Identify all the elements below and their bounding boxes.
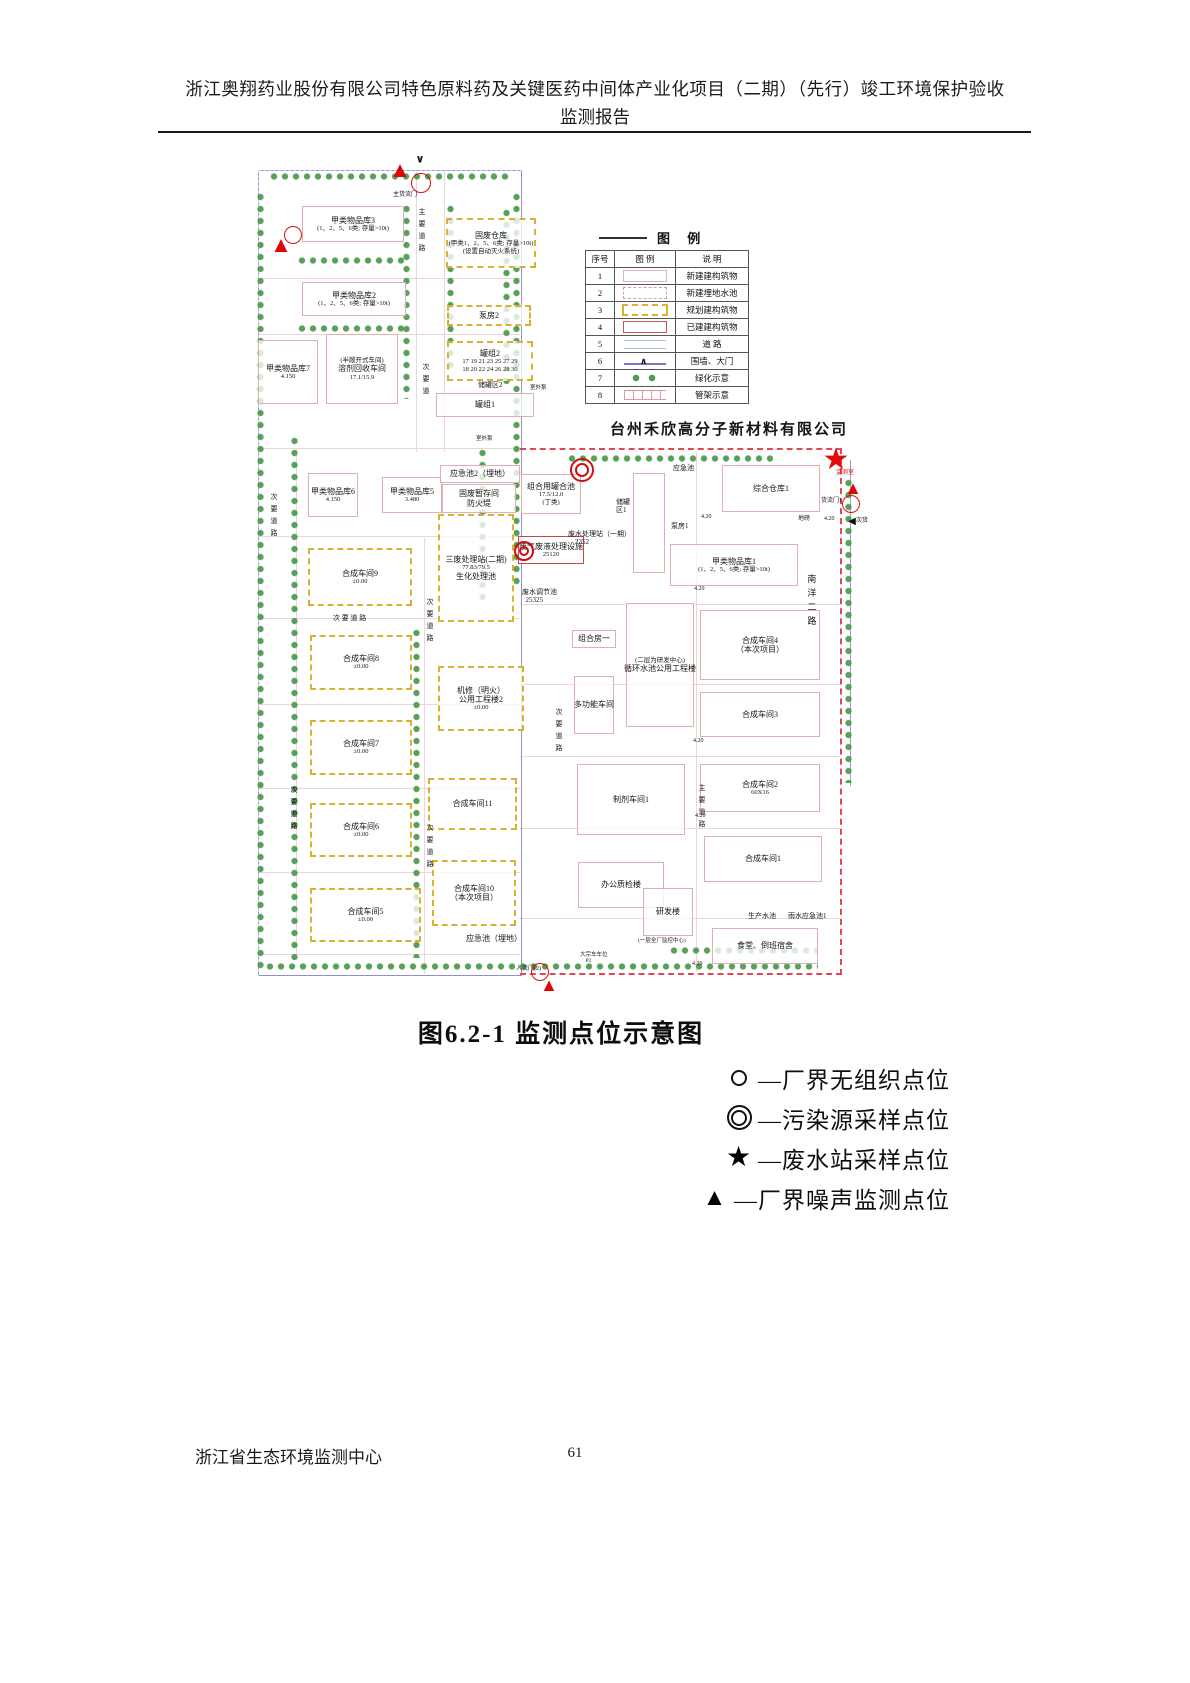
map-building: 甲类物品库64.150	[308, 473, 358, 517]
map-label: 废水处理站（一期） 2352	[568, 530, 631, 546]
legend-row-number: 3	[586, 302, 615, 319]
legend-title-row: 图 例	[585, 226, 747, 250]
map-building: 应急池（埋地）	[446, 931, 542, 947]
legend-row-number: 8	[586, 387, 615, 404]
map-label: 次要道路	[426, 824, 434, 872]
map-building: 合成车间11	[428, 778, 517, 830]
site-plan-map: 台州禾欣高分子新材料有限公司 图 例 序号图 例说 明 1新建建构筑物2新建埋地…	[250, 148, 872, 996]
map-label: 主要道路	[418, 208, 426, 256]
legend-swatch-cell	[615, 370, 676, 387]
map-label: 室外泵	[476, 436, 493, 442]
point-legend-item: ★—废水站采样点位	[721, 1142, 950, 1173]
point-legend-label: —污染源采样点位	[758, 1101, 950, 1135]
legend-swatch-cell	[615, 319, 676, 336]
map-label: 储罐区2	[478, 381, 503, 389]
map-building: 固废仓库(甲类1、2、5、6类; 存量>10t)(设置自动灭火系统)	[446, 218, 536, 268]
legend-row: 5道 路	[586, 336, 749, 353]
legend-swatch-pipe	[624, 390, 666, 400]
project-boundary-right	[840, 448, 842, 975]
map-label: 次要道路	[290, 786, 298, 834]
legend-swatch-new	[623, 270, 667, 282]
map-label: 室外泵	[530, 385, 547, 391]
map-building: 制剂车间1	[577, 764, 685, 835]
map-building: 合成车间260X16	[700, 764, 820, 812]
marker-star: ★	[823, 445, 850, 475]
map-building: 合成车间9±0.00	[308, 548, 412, 606]
map-label: 次货	[856, 518, 868, 525]
legend-swatch-cell	[615, 387, 676, 404]
legend-swatch-cell	[615, 353, 676, 370]
triangle-symbol-icon: ▲	[697, 1186, 733, 1210]
legend-swatch-cell	[615, 302, 676, 319]
map-building: 组合用罐合池17.5/12.0(丁类)	[521, 474, 581, 514]
map-label: 主货流门	[393, 192, 417, 199]
legend-row: 1新建建构筑物	[586, 268, 749, 285]
map-label: 雨水应急池1	[788, 912, 827, 920]
legend-swatch-green	[624, 373, 666, 383]
legend-description: 围墙、大门	[676, 353, 749, 370]
legend-description: 管架示意	[676, 387, 749, 404]
legend-swatch-built	[623, 321, 667, 333]
legend-header: 图 例	[615, 251, 676, 268]
map-label: 泵房1	[671, 522, 689, 530]
map-label: 主要道路	[698, 784, 706, 832]
marker-tri: ▲	[540, 976, 558, 994]
map-building: 合成车间6±0.00	[310, 803, 412, 857]
legend-description: 道 路	[676, 336, 749, 353]
legend-description: 已建建构筑物	[676, 319, 749, 336]
tree-row	[298, 324, 408, 333]
map-label: 货流门1	[821, 498, 842, 505]
legend-swatch-pool	[623, 287, 667, 299]
road-line	[696, 452, 697, 972]
map-label: 次要道路	[555, 708, 563, 756]
tree-row	[298, 256, 408, 265]
page-number: 61	[0, 1445, 1150, 1462]
legend-description: 规划建构筑物	[676, 302, 749, 319]
point-legend-item: —污染源采样点位	[721, 1102, 950, 1133]
point-legend-label: —厂界噪声监测点位	[734, 1181, 950, 1215]
tree-row	[256, 192, 265, 970]
neighbor-company-label: 台州禾欣高分子新材料有限公司	[610, 418, 848, 439]
marker-vdown: ∨	[416, 155, 425, 166]
legend-row: 4已建建构筑物	[586, 319, 749, 336]
map-building: 合成车间7±0.00	[310, 720, 412, 775]
map-building: 合成车间3	[700, 692, 820, 737]
road-line	[520, 756, 840, 757]
legend-dash	[599, 237, 647, 239]
map-building: 食堂、倒班宿舍	[712, 928, 818, 964]
map-building: (二层为研发中心)循环水池公用工程楼	[626, 603, 694, 727]
map-label: 4.20	[692, 961, 703, 968]
map-label: 次 要 道 路	[333, 614, 366, 622]
tree-row	[290, 436, 299, 966]
map-label: 次要道路	[270, 493, 278, 541]
report-page: 浙江奥翔药业股份有限公司特色原料药及关键医药中间体产业化项目（二期）（先行）竣工…	[0, 0, 1190, 1683]
tree-row	[568, 454, 773, 463]
map-label: 次要道路	[426, 598, 434, 646]
map-building: 合成车间10（本次项目）	[432, 860, 516, 926]
map-label: 应急池	[673, 464, 694, 472]
point-legend-item: ▲—厂界噪声监测点位	[697, 1182, 950, 1213]
marker-dbl	[514, 541, 534, 561]
legend-header: 序号	[586, 251, 615, 268]
star-icon: ★	[726, 1144, 752, 1172]
map-building: 合成车间5±0.00	[310, 888, 421, 942]
legend-swatch-planned	[622, 304, 668, 316]
legend-row: 3规划建构筑物	[586, 302, 749, 319]
legend-swatch-road	[624, 340, 666, 349]
map-building: 机修（明火）公用工程楼2±0.00	[438, 666, 524, 731]
map-label: (一层全厂监控中心)	[638, 938, 686, 944]
legend-row: 7绿化示意	[586, 370, 749, 387]
map-building: (半敞开式车间)溶剂回收车间17.1/15.9	[326, 334, 398, 404]
point-legend: —厂界无组织点位—污染源采样点位★—废水站采样点位▲—厂界噪声监测点位	[650, 1062, 950, 1213]
legend-row-number: 1	[586, 268, 615, 285]
map-label: 废水调节池 25325	[522, 588, 557, 604]
legend-row-number: 7	[586, 370, 615, 387]
map-label: 4.20	[701, 514, 712, 521]
legend-swatch-wall	[624, 363, 666, 365]
legend-swatch-cell	[615, 285, 676, 302]
map-building: 罐组217 19 21 23 25 27 2918 20 22 24 26 28…	[447, 341, 533, 381]
legend-row: 6围墙、大门	[586, 353, 749, 370]
map-building: 合成车间4（本次项目）	[700, 610, 820, 680]
legend-description: 绿化示意	[676, 370, 749, 387]
legend-title: 图 例	[657, 228, 707, 247]
map-label: 生产水池	[748, 912, 776, 920]
map-label: 4.20	[694, 586, 705, 593]
marker-tri: ▲	[389, 159, 411, 181]
map-building: 甲类物品库53.480	[382, 477, 442, 513]
legend-row: 2新建埋地水池	[586, 285, 749, 302]
map-label: 4.20	[824, 516, 835, 523]
legend-row-number: 2	[586, 285, 615, 302]
map-label: 储罐 区1	[616, 498, 630, 514]
legend-description: 新建建构筑物	[676, 268, 749, 285]
map-building: 合成车间8±0.00	[310, 635, 412, 690]
map-label: 次要道	[422, 363, 430, 399]
map-label: 4.20	[693, 738, 704, 745]
map-building: 合成车间1	[704, 836, 822, 882]
circle-symbol-icon	[721, 1070, 757, 1086]
triangle-icon: ▲	[703, 1186, 728, 1210]
legend-row: 8管架示意	[586, 387, 749, 404]
legend-row-number: 4	[586, 319, 615, 336]
map-building: 综合仓库1	[722, 465, 820, 512]
map-label: 4.20	[695, 813, 706, 820]
header-line2: 监测报告	[0, 104, 1190, 129]
legend-row-number: 5	[586, 336, 615, 353]
map-label: 南洋二路	[806, 574, 816, 630]
map-building: 研发楼	[643, 888, 693, 936]
point-legend-item: —厂界无组织点位	[721, 1062, 950, 1093]
map-building: 泵房2	[447, 305, 531, 326]
map-building: 应急池2（埋地）	[440, 465, 520, 483]
point-legend-label: —厂界无组织点位	[758, 1061, 950, 1095]
point-legend-label: —废水站采样点位	[758, 1141, 950, 1175]
marker-circ	[411, 173, 431, 193]
legend-table: 序号图 例说 明 1新建建构筑物2新建埋地水池3规划建构筑物4已建建构筑物5道 …	[585, 250, 749, 404]
map-building: 三废处理站(二期)77.83/79.5生化处理池	[438, 514, 514, 622]
map-building: 罐组1	[436, 393, 534, 417]
legend-swatch-cell	[615, 336, 676, 353]
map-label: 大宗车车位 P2	[580, 952, 608, 965]
map-building: 甲类物品库1(1、2、5、6类; 存量>10t)	[670, 544, 798, 586]
legend-header: 说 明	[676, 251, 749, 268]
legend-swatch-cell	[615, 268, 676, 285]
figure-caption: 图6.2-1 监测点位示意图	[250, 1014, 872, 1050]
double-icon	[727, 1105, 752, 1130]
project-boundary-top	[520, 448, 842, 450]
circle-icon	[731, 1070, 747, 1086]
map-building: 固废暂存间防火堤	[442, 484, 516, 513]
double-symbol-icon	[721, 1105, 757, 1130]
map-building: 甲类物品库2(1、2、5、6类; 存量>10t)	[302, 282, 406, 316]
header-line1: 浙江奥翔药业股份有限公司特色原料药及关键医药中间体产业化项目（二期）（先行）竣工…	[0, 76, 1190, 101]
map-building: 甲类物品库74.150	[258, 340, 318, 404]
marker-circ	[284, 226, 302, 244]
map-building: 组合房一	[572, 630, 616, 648]
legend-description: 新建埋地水池	[676, 285, 749, 302]
map-label: 地磅	[798, 516, 810, 523]
marker-dbl	[570, 458, 594, 482]
legend-row-number: 6	[586, 353, 615, 370]
map-legend: 图 例 序号图 例说 明 1新建建构筑物2新建埋地水池3规划建构筑物4已建建构筑…	[585, 226, 747, 404]
marker-left: ◀	[848, 517, 856, 527]
map-building: 甲类物品库3(1、2、5、6类; 存量>10t)	[302, 206, 404, 242]
header-divider	[158, 131, 1031, 133]
star-symbol-icon: ★	[721, 1144, 757, 1172]
map-building	[633, 473, 665, 573]
marker-circ	[842, 495, 860, 513]
map-building: 多功能车间	[574, 676, 614, 734]
project-boundary-bottom	[520, 973, 842, 975]
